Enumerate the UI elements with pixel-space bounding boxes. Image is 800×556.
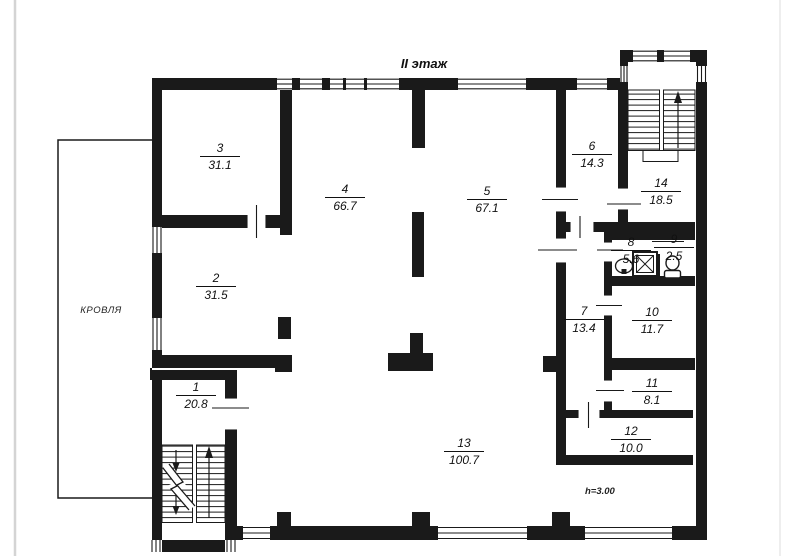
room-label-5: 5 67.1	[457, 183, 517, 214]
room-area: 8.1	[622, 392, 682, 406]
room-number: 9	[654, 232, 694, 248]
room-area: 13.4	[554, 320, 614, 334]
room-number: 13	[444, 436, 484, 452]
room-area: 67.1	[457, 200, 517, 214]
room-label-13: 13 100.7	[434, 435, 494, 466]
room-label-3: 3 31.1	[190, 140, 250, 171]
roof-label: КРОВЛЯ	[71, 305, 131, 316]
floor-plan-drawing	[0, 0, 800, 556]
walls-layer	[150, 50, 707, 552]
room-number: 6	[572, 139, 612, 155]
room-area: 66.7	[315, 198, 375, 212]
staircase-bottom-left	[162, 445, 225, 523]
room-label-9: 9 2.5	[644, 231, 704, 262]
room-label-12: 12 10.0	[601, 423, 661, 454]
room-area: 11.7	[622, 321, 682, 335]
room-label-1: 1 20.8	[166, 379, 226, 410]
room-area: 31.1	[190, 157, 250, 171]
room-label-6: 6 14.3	[562, 138, 622, 169]
room-number: 11	[632, 376, 672, 392]
plan-title: II этаж	[374, 56, 474, 71]
room-area: 18.5	[631, 192, 691, 206]
height-note: h=3.00	[585, 486, 655, 497]
floor-plan: II этаж КРОВЛЯ h=3.00 1 20.8 2 31.5 3 31…	[0, 0, 800, 556]
room-label-2: 2 31.5	[186, 270, 246, 301]
room-label-14: 14 18.5	[631, 175, 691, 206]
roof-outline	[58, 140, 152, 498]
room-number: 10	[632, 305, 672, 321]
room-number: 5	[467, 184, 507, 200]
room-label-7: 7 13.4	[554, 303, 614, 334]
room-label-11: 11 8.1	[622, 375, 682, 406]
room-number: 3	[200, 141, 240, 157]
room-area: 31.5	[186, 287, 246, 301]
room-number: 12	[611, 424, 651, 440]
room-area: 100.7	[434, 452, 494, 466]
room-number: 4	[325, 182, 365, 198]
room-number: 1	[176, 380, 216, 396]
room-number: 2	[196, 271, 236, 287]
room-label-10: 10 11.7	[622, 304, 682, 335]
room-area: 10.0	[601, 440, 661, 454]
room-area: 20.8	[166, 396, 226, 410]
room-area: 14.3	[562, 155, 622, 169]
room-area: 2.5	[644, 248, 704, 262]
room-number: 14	[641, 176, 681, 192]
room-label-4: 4 66.7	[315, 181, 375, 212]
room-number: 7	[564, 304, 604, 320]
staircase-top-right	[628, 90, 695, 162]
